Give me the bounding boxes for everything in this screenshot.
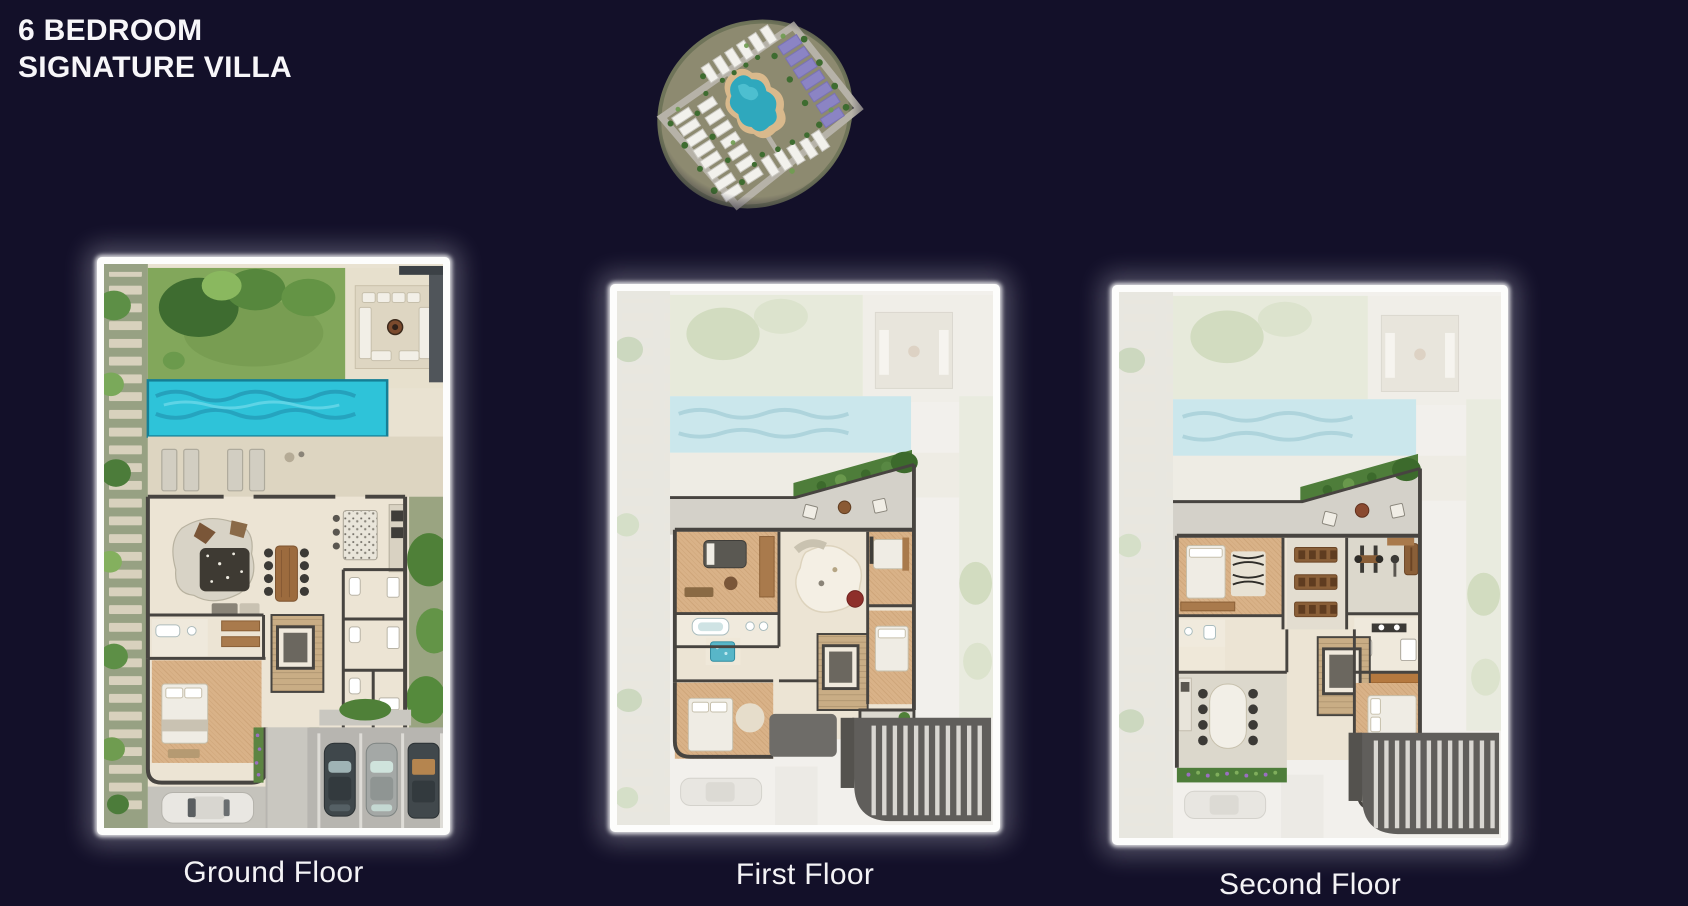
second-floor-plan-card (1112, 285, 1508, 845)
masterplan-image (635, 6, 875, 222)
gym (1347, 538, 1420, 614)
side-garden-path (104, 264, 148, 828)
first-floor-plan-card (610, 284, 1000, 832)
title-line2: SIGNATURE VILLA (18, 51, 292, 84)
bedroom-5 (1177, 538, 1283, 616)
pergola-canopy (1349, 733, 1499, 834)
ground-floor-label: Ground Floor (97, 856, 450, 890)
flower-planter (1177, 768, 1287, 783)
stairs (818, 634, 868, 710)
water-feature (429, 272, 443, 382)
powder-rooms (1177, 620, 1225, 673)
parked-suv (408, 743, 439, 818)
bedroom-4 (868, 611, 914, 705)
page-title: 6 BEDROOM SIGNATURE VILLA (18, 12, 292, 86)
master-bedroom (675, 532, 779, 614)
cinema-room (1287, 538, 1345, 630)
bedroom-2 (868, 532, 914, 606)
first-floor-plan-image (617, 291, 993, 825)
jacuzzi-room (706, 638, 741, 665)
stairs (272, 615, 324, 692)
first-floor-label: First Floor (610, 858, 1000, 892)
white-car (148, 787, 266, 828)
masterplan-aerial-thumbnail (635, 6, 875, 222)
title-line1: 6 BEDROOM (18, 14, 202, 47)
parked-car-silver (366, 743, 397, 816)
upper-dining (1177, 674, 1287, 768)
garden-lawn (148, 268, 345, 380)
outdoor-lounge (345, 268, 443, 388)
bedroom-3 (675, 683, 773, 759)
swimming-pool (148, 380, 387, 436)
pool-deck (148, 437, 443, 497)
parked-car-dark (324, 743, 355, 816)
ground-bedroom (148, 619, 266, 783)
second-floor-plan-image (1119, 292, 1501, 838)
ground-floor-plan-card (97, 257, 450, 835)
pergola-canopy (841, 718, 991, 821)
ground-floor-plan-image (104, 264, 443, 828)
second-floor-label: Second Floor (1112, 868, 1508, 902)
center-balcony (769, 714, 836, 757)
